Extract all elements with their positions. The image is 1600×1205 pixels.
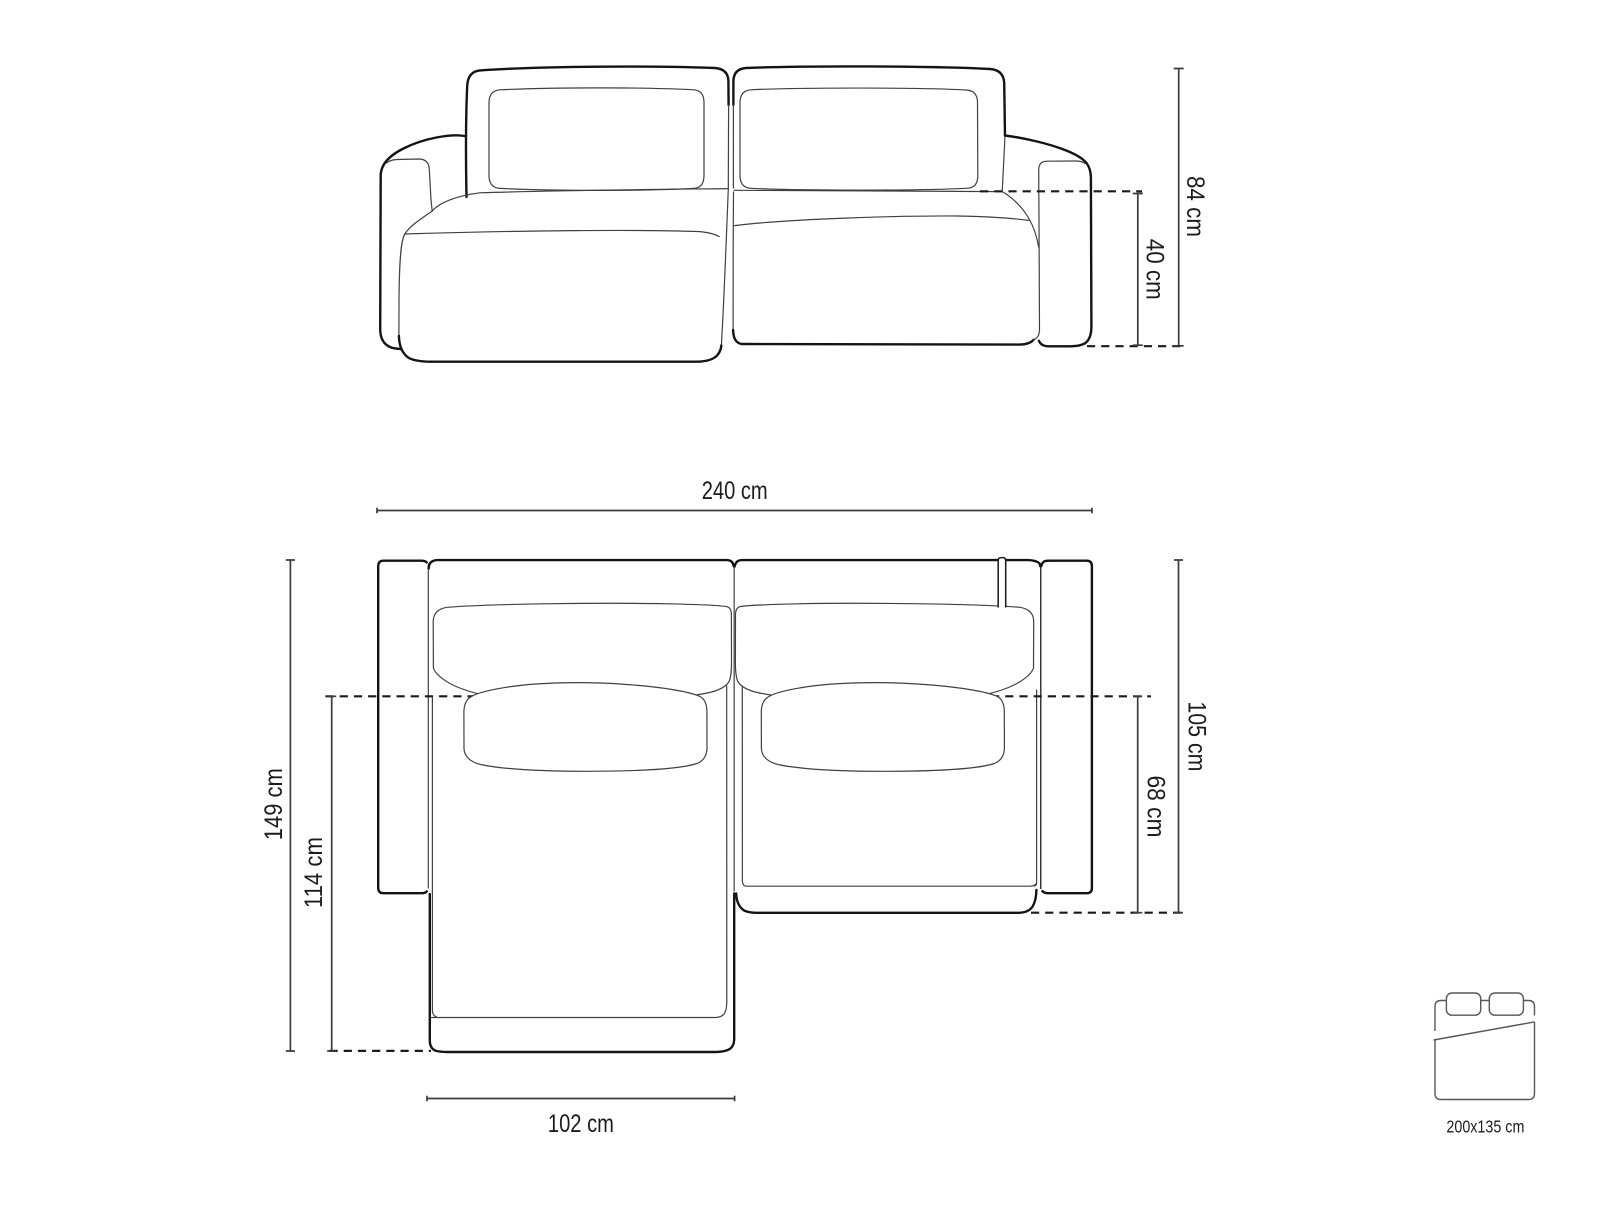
svg-text:149 cm: 149 cm [260, 768, 288, 840]
svg-text:40 cm: 40 cm [1141, 239, 1169, 300]
svg-text:200x135 cm: 200x135 cm [1446, 1117, 1524, 1137]
svg-text:102 cm: 102 cm [548, 1110, 614, 1138]
svg-text:84 cm: 84 cm [1181, 176, 1209, 237]
svg-text:240 cm: 240 cm [702, 477, 768, 505]
svg-text:68 cm: 68 cm [1142, 776, 1170, 838]
svg-text:114 cm: 114 cm [300, 837, 328, 908]
svg-text:105 cm: 105 cm [1183, 701, 1211, 771]
